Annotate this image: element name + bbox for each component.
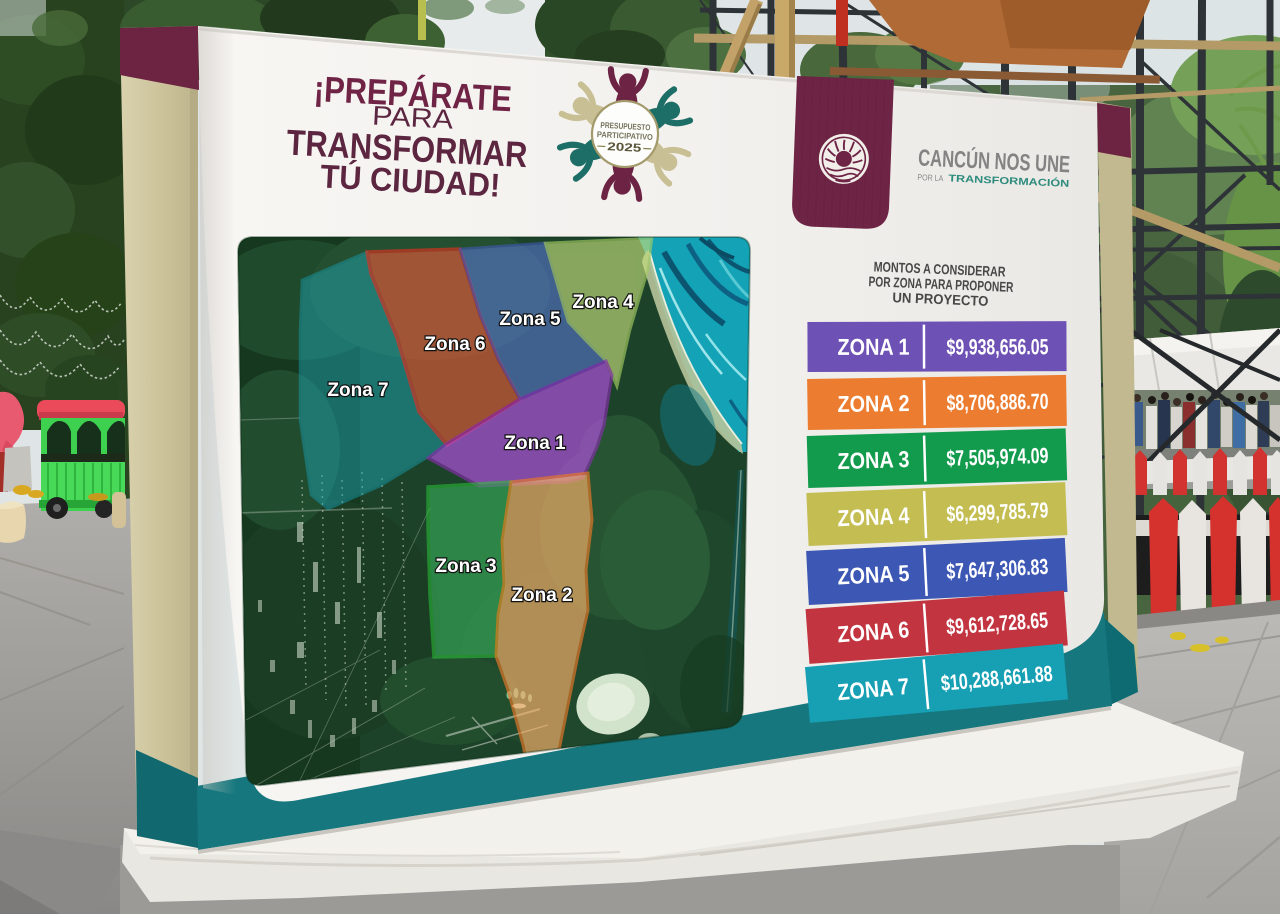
svg-text:ZONA 3: ZONA 3 <box>837 446 910 474</box>
svg-text:ZONA 6: ZONA 6 <box>836 616 910 647</box>
svg-text:Zona 6: Zona 6 <box>424 334 485 355</box>
svg-text:Zona 2: Zona 2 <box>511 585 572 606</box>
svg-text:Zona 7: Zona 7 <box>327 380 388 401</box>
svg-text:$6,299,785.79: $6,299,785.79 <box>946 497 1049 526</box>
svg-text:Zona 4: Zona 4 <box>572 292 634 313</box>
svg-text:ZONA 2: ZONA 2 <box>837 390 909 417</box>
svg-text:2025: 2025 <box>607 141 642 155</box>
svg-text:ZONA 5: ZONA 5 <box>837 560 910 590</box>
svg-text:Zona 1: Zona 1 <box>504 433 566 454</box>
svg-text:ZONA 4: ZONA 4 <box>837 502 910 531</box>
svg-text:Zona 3: Zona 3 <box>435 556 496 577</box>
svg-text:ZONA 1: ZONA 1 <box>837 334 909 360</box>
svg-text:$9,938,656.05: $9,938,656.05 <box>946 334 1048 359</box>
svg-text:$8,706,886.70: $8,706,886.70 <box>946 389 1048 416</box>
svg-text:Zona 5: Zona 5 <box>499 309 561 330</box>
svg-text:POR LA: POR LA <box>917 172 944 183</box>
svg-text:$7,647,306.83: $7,647,306.83 <box>946 554 1049 584</box>
svg-text:$7,505,974.09: $7,505,974.09 <box>946 443 1049 471</box>
